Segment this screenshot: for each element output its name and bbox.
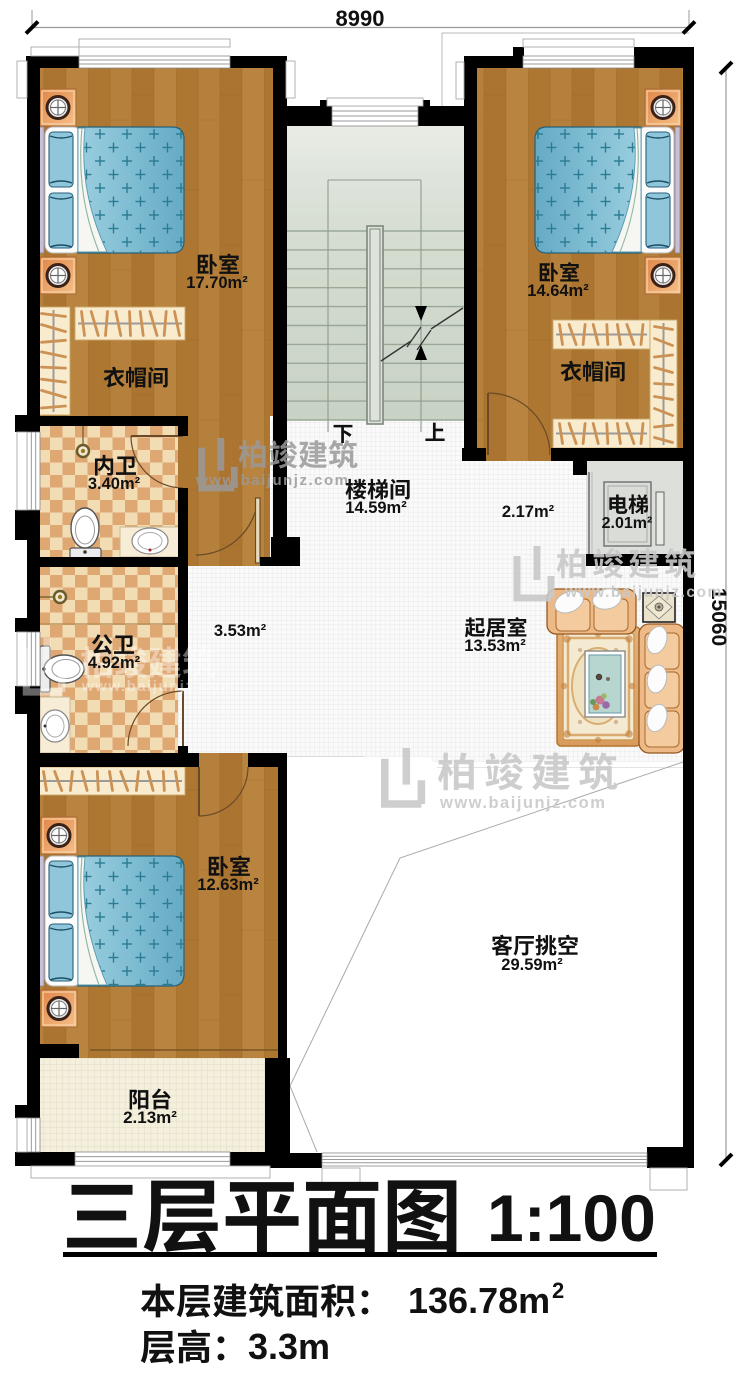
svg-text:2.01m²: 2.01m² xyxy=(602,515,653,532)
svg-text:www.baijunjz.com: www.baijunjz.com xyxy=(564,584,723,601)
svg-text:14.64m²: 14.64m² xyxy=(527,282,589,300)
svg-text:3.53m²: 3.53m² xyxy=(214,622,267,640)
svg-text:4.92m²: 4.92m² xyxy=(88,654,141,672)
svg-text:12.63m²: 12.63m² xyxy=(197,876,259,894)
svg-text:www.baijunjz.com: www.baijunjz.com xyxy=(439,794,606,812)
svg-text:3.40m²: 3.40m² xyxy=(88,475,141,493)
svg-text:2: 2 xyxy=(552,1278,564,1303)
svg-text:136.78m: 136.78m xyxy=(408,1280,550,1321)
svg-text:3.3m: 3.3m xyxy=(248,1326,330,1367)
svg-text:13.53m²: 13.53m² xyxy=(464,637,526,655)
svg-text:29.59m²: 29.59m² xyxy=(501,956,563,974)
svg-text:2.13m²: 2.13m² xyxy=(123,1108,177,1127)
svg-text:www.baijunjz.com: www.baijunjz.com xyxy=(195,472,349,489)
svg-text:www.baijunjz.com: www.baijunjz.com xyxy=(81,678,235,695)
svg-text:1:100: 1:100 xyxy=(487,1181,656,1255)
svg-text:14.59m²: 14.59m² xyxy=(345,499,407,517)
svg-text:17.70m²: 17.70m² xyxy=(186,274,248,292)
svg-text:2.17m²: 2.17m² xyxy=(502,503,555,521)
svg-text:8990: 8990 xyxy=(336,6,385,31)
